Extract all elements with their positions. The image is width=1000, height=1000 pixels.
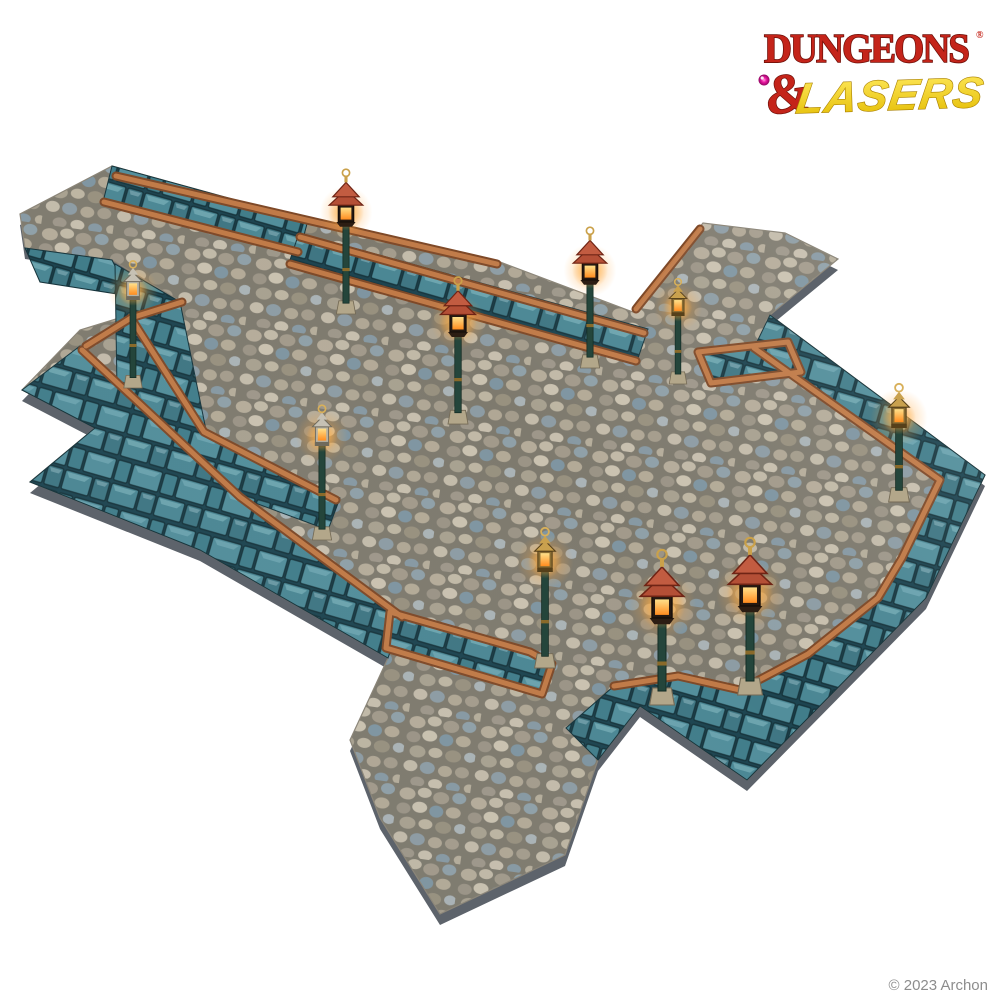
- lamp-pole: [896, 428, 903, 490]
- lamp-head: [882, 384, 916, 435]
- lamp-window: [318, 429, 326, 441]
- terrain-sheen-overlay: [0, 0, 1000, 1000]
- copyright-text: © 2023 Archon: [889, 977, 988, 994]
- product-photo-stage: DUNGEONS ® & LASERS © 2023 Archon: [0, 0, 1000, 1000]
- lamp-window: [674, 300, 682, 311]
- lamp-window: [585, 266, 596, 278]
- lamp-pole: [542, 572, 549, 656]
- logo-word-lasers: LASERS: [793, 69, 987, 123]
- lamp-head: [328, 169, 364, 230]
- terrain-illustration: [0, 0, 1000, 1000]
- lamp-window: [743, 587, 757, 603]
- lamp-window: [540, 553, 549, 566]
- logo-registered-mark: ®: [976, 30, 984, 41]
- lamp-pole: [343, 222, 349, 303]
- lamp-pole: [319, 446, 325, 529]
- lamp-pole: [746, 606, 754, 681]
- dungeons-and-lasers-logo: DUNGEONS ® & LASERS: [748, 20, 994, 124]
- lamp-head: [572, 227, 608, 288]
- lamp-hanging-ring-icon: [342, 169, 349, 176]
- lamp-window: [452, 317, 463, 330]
- lamp-pole: [675, 316, 681, 374]
- lamp-window: [894, 409, 903, 422]
- lamp-pole: [130, 300, 136, 378]
- lamp-pole: [587, 280, 593, 357]
- lamp-window: [129, 283, 137, 295]
- lamp-window: [655, 599, 669, 615]
- lamp-hanging-ring-icon: [586, 227, 593, 234]
- lamp-window: [341, 208, 352, 220]
- lamp-pole: [455, 332, 462, 413]
- lamp-pole: [658, 618, 666, 691]
